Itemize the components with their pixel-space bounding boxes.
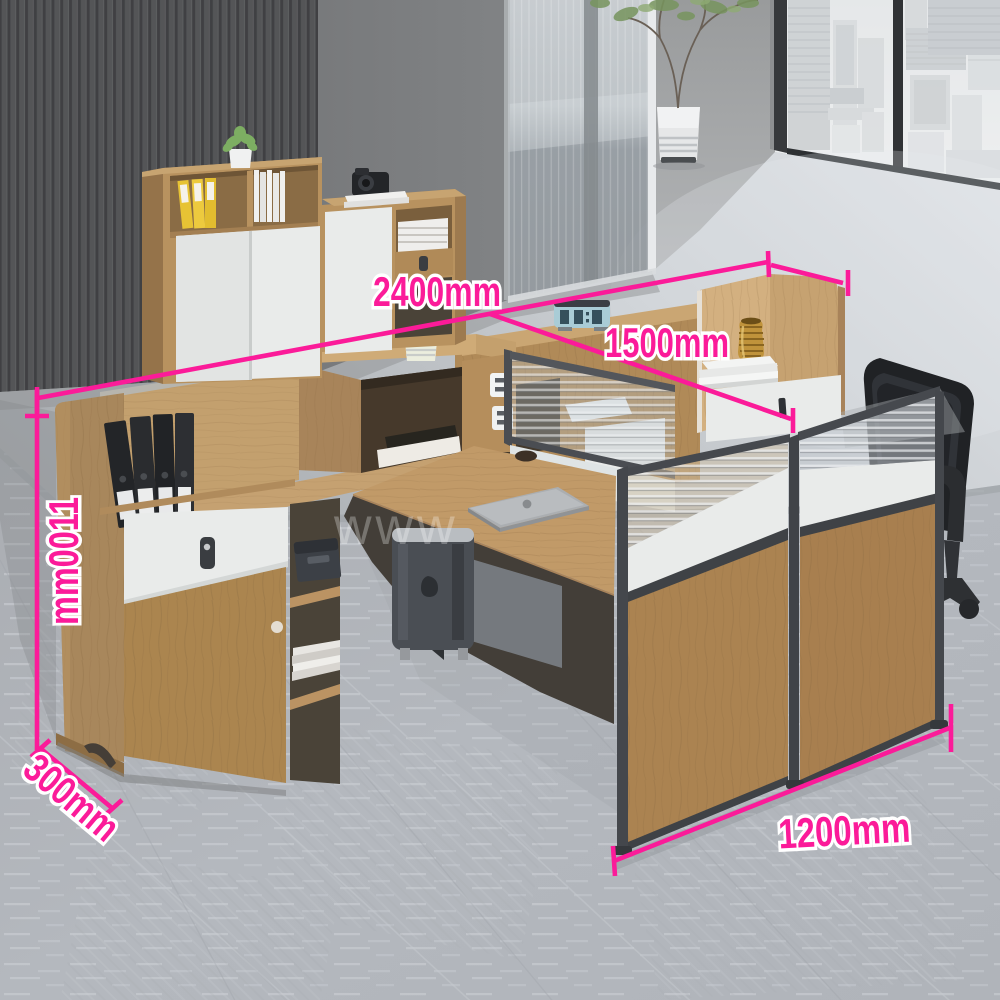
svg-text:2400mm: 2400mm bbox=[373, 268, 501, 315]
svg-text:mm0011: mm0011 bbox=[40, 497, 87, 625]
svg-text:1500mm: 1500mm bbox=[605, 319, 729, 366]
svg-text:1200mm: 1200mm bbox=[777, 804, 911, 858]
svg-text:www: www bbox=[333, 498, 459, 556]
